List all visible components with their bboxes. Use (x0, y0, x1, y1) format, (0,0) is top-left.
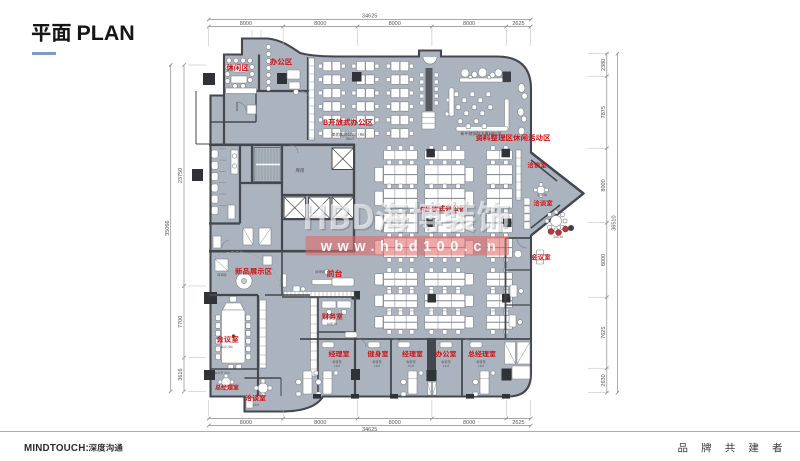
svg-text:2630: 2630 (601, 374, 607, 386)
svg-text:2625: 2625 (512, 21, 524, 27)
svg-text:35066: 35066 (165, 221, 171, 236)
svg-text:8000: 8000 (463, 420, 475, 426)
svg-text:2625: 2625 (512, 420, 524, 426)
svg-text:MINDTOUCH:: MINDTOUCH: (24, 443, 89, 454)
svg-text:7700: 7700 (178, 316, 184, 328)
svg-text:34625: 34625 (362, 14, 377, 20)
svg-text:7625: 7625 (601, 327, 607, 339)
svg-text:2380: 2380 (601, 59, 607, 71)
svg-text:8000: 8000 (314, 420, 326, 426)
svg-text:8000: 8000 (601, 254, 607, 266)
svg-text:7875: 7875 (601, 106, 607, 118)
svg-text:8000: 8000 (314, 21, 326, 27)
svg-text:3616: 3616 (178, 368, 184, 380)
svg-text:PLAN: PLAN (77, 21, 135, 45)
svg-text:8000: 8000 (389, 21, 401, 27)
svg-text:8000: 8000 (389, 420, 401, 426)
svg-text:8000: 8000 (240, 21, 252, 27)
svg-text:8000: 8000 (463, 21, 475, 27)
svg-text:8000: 8000 (240, 420, 252, 426)
svg-text:8000: 8000 (601, 179, 607, 191)
svg-text:www.hbd100.cn: www.hbd100.cn (320, 239, 502, 255)
svg-text:36510: 36510 (612, 215, 618, 230)
svg-text:23750: 23750 (178, 168, 184, 183)
